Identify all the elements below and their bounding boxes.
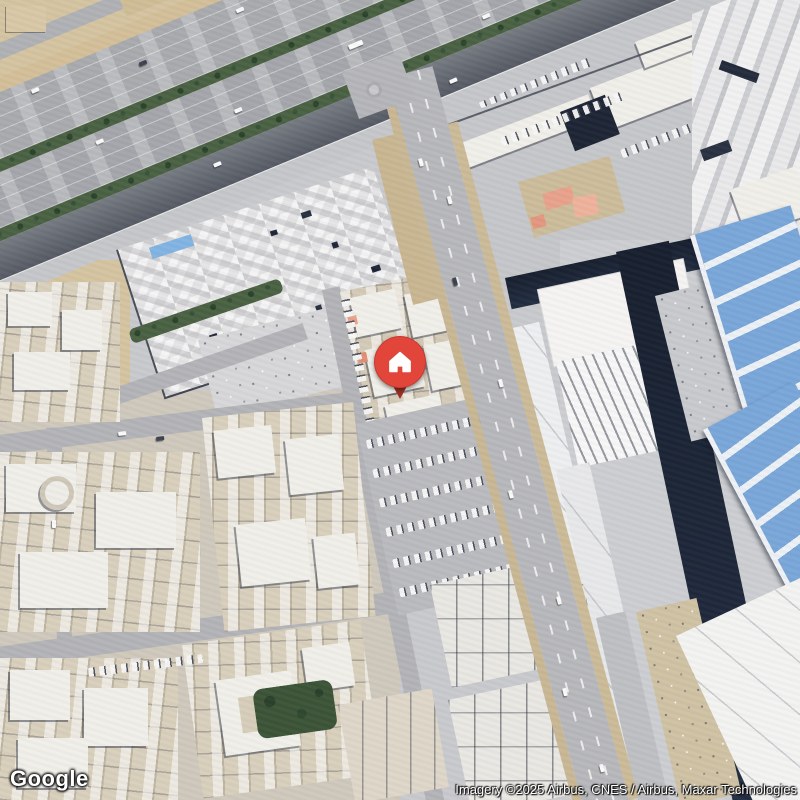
car [418,158,424,167]
building [213,425,276,479]
equipment [270,229,278,236]
google-logo[interactable]: Google [10,766,89,792]
building [285,434,345,495]
building [62,310,102,350]
equipment [371,264,381,272]
residential-block [0,282,120,422]
round-structure [40,476,74,510]
water-pool [149,234,195,259]
pin-bubble [374,336,426,388]
residential-block [0,452,200,632]
car [498,379,504,388]
building [84,688,148,746]
equipment [301,210,312,219]
building [8,292,52,326]
house-icon [386,348,414,376]
sand-building [6,6,46,32]
residential-block [338,689,449,800]
residential-block [202,402,376,632]
building [235,518,311,587]
roundabout-island [366,82,382,98]
salmon-roof [572,194,599,218]
building [10,670,70,720]
building [313,533,360,589]
building [96,492,176,548]
map-attribution: Imagery ©2025 Airbus, CNES / Airbus, Max… [455,782,797,797]
location-pin[interactable] [368,336,432,408]
equipment [331,241,339,249]
car [52,520,56,528]
car [556,596,562,605]
building [20,552,108,608]
building [349,289,402,338]
building [14,352,70,390]
satellite-map-canvas[interactable]: Google Imagery ©2025 Airbus, CNES / Airb… [0,0,800,800]
